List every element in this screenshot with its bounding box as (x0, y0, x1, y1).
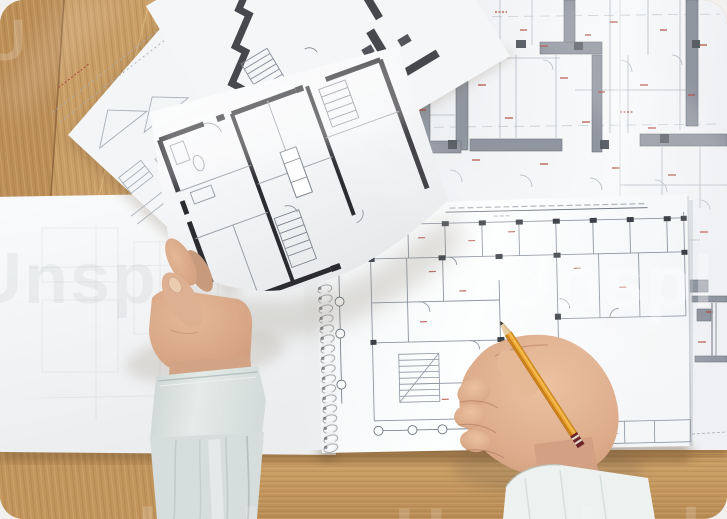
watermark-left-text: Unsp (0, 239, 158, 319)
rounded-corner-frame: Unsp (0, 0, 727, 519)
watermark-corner-text: U (0, 8, 28, 73)
watermark-bottom-text: Unsplash (395, 494, 726, 519)
watermark-right-text: Unspl (500, 240, 716, 323)
left-hand-back (149, 289, 252, 368)
watermark-bottom-text: Unsplash (0, 494, 286, 519)
notebook-edge-shadow (689, 200, 693, 446)
